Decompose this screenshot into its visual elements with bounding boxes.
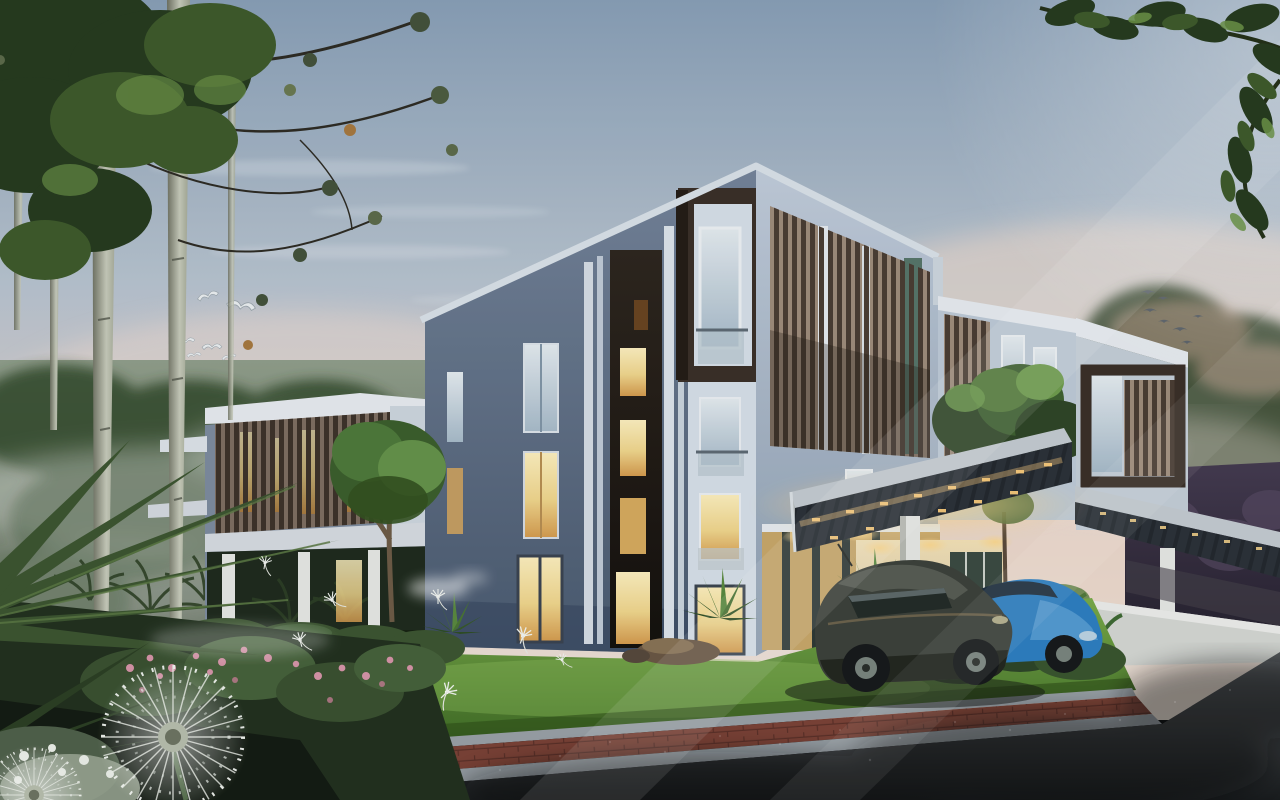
dusk-tint	[0, 0, 1280, 800]
architectural-rendering	[0, 0, 1280, 800]
rendering-canvas	[0, 0, 1280, 800]
